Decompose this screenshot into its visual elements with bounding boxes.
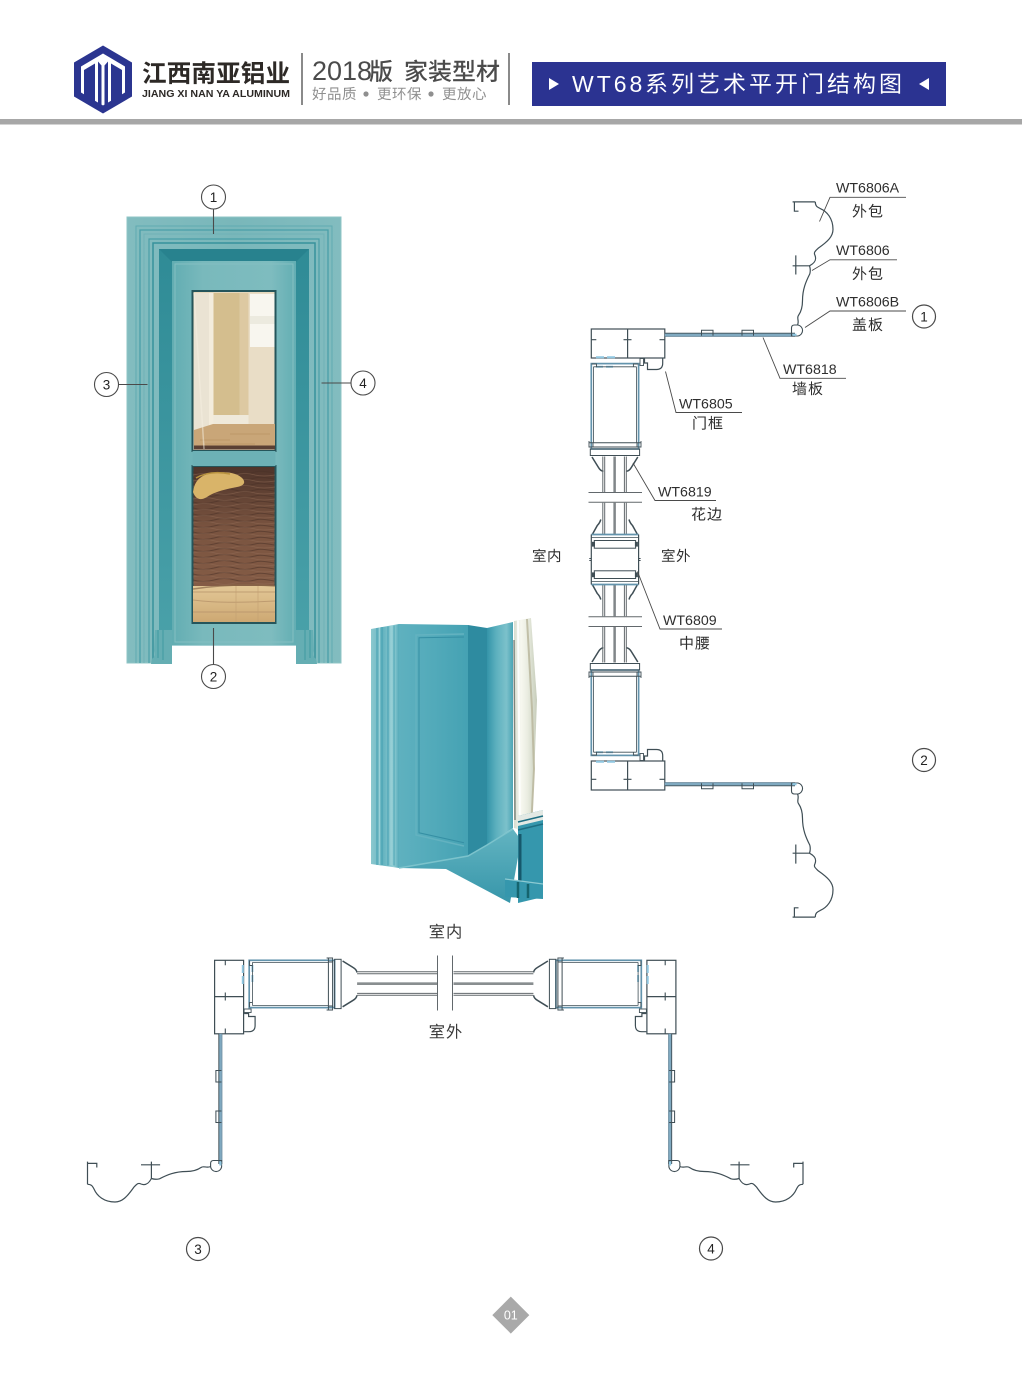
svg-text:WT68: WT68 — [572, 71, 645, 97]
svg-text:3: 3 — [103, 378, 111, 393]
svg-text:WT6818: WT6818 — [783, 362, 837, 378]
svg-text:3: 3 — [194, 1242, 202, 1257]
svg-text:WT6805: WT6805 — [679, 396, 733, 412]
svg-text:2018: 2018 — [312, 56, 372, 86]
svg-text:1: 1 — [210, 190, 218, 205]
svg-text:WT6806B: WT6806B — [836, 294, 899, 310]
svg-text:WT6806: WT6806 — [836, 243, 890, 259]
svg-text:1: 1 — [920, 309, 928, 324]
svg-text:JIANG XI NAN YA ALUMINUM: JIANG XI NAN YA ALUMINUM — [142, 89, 290, 100]
svg-text:WT6806A: WT6806A — [836, 181, 900, 197]
svg-text:4: 4 — [359, 376, 367, 391]
svg-text:4: 4 — [707, 1241, 715, 1256]
svg-text:2: 2 — [210, 670, 218, 685]
svg-text:WT6819: WT6819 — [658, 484, 712, 500]
svg-text:WT6809: WT6809 — [663, 613, 717, 629]
svg-text:01: 01 — [504, 1309, 518, 1323]
svg-text:2: 2 — [920, 753, 928, 768]
